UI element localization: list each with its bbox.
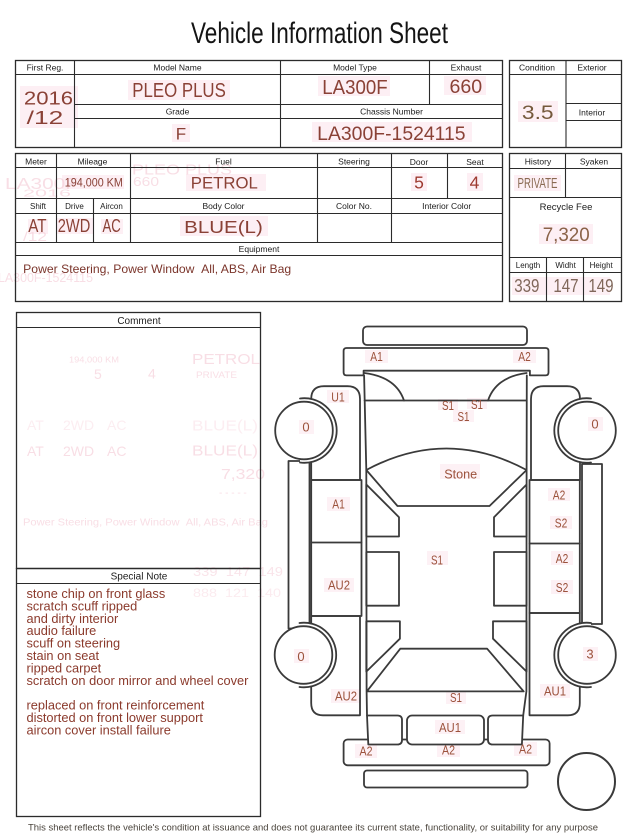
svg-text:Shift: Shift: [30, 202, 47, 211]
svg-text:AT: AT: [28, 216, 46, 236]
svg-text:3.5: 3.5: [522, 102, 554, 124]
svg-text:S1: S1: [431, 553, 443, 568]
svg-text:Interior Color: Interior Color: [422, 201, 471, 211]
svg-text:Aircon: Aircon: [100, 202, 123, 211]
svg-text:A2: A2: [556, 551, 569, 566]
svg-text:aircon cover install failure: aircon cover install failure: [27, 722, 171, 737]
svg-text:A2: A2: [360, 744, 373, 759]
svg-text:- - - - -: - - - - -: [219, 488, 247, 499]
svg-text:AU2: AU2: [328, 578, 350, 593]
svg-text:U1: U1: [331, 390, 345, 405]
svg-text:A1: A1: [370, 349, 383, 364]
svg-text:AT: AT: [27, 443, 44, 459]
svg-text:Special Note: Special Note: [111, 572, 168, 583]
svg-text:3: 3: [586, 647, 593, 662]
svg-text:194,000 KM: 194,000 KM: [69, 355, 119, 365]
svg-text:S2: S2: [556, 580, 569, 595]
svg-text:Mileage: Mileage: [78, 157, 108, 167]
svg-text:Length: Length: [516, 261, 540, 270]
svg-text:2016: 2016: [23, 189, 72, 200]
svg-text:0: 0: [297, 649, 304, 664]
svg-text:LA300F: LA300F: [322, 76, 387, 99]
svg-text:A2: A2: [442, 743, 455, 758]
svg-text:Drive: Drive: [65, 202, 84, 211]
svg-text:AC: AC: [107, 443, 126, 459]
svg-text:Model Type: Model Type: [333, 63, 377, 73]
svg-text:Stone: Stone: [444, 467, 477, 482]
svg-text:BLUE(L): BLUE(L): [192, 443, 258, 460]
svg-text:Exhaust: Exhaust: [451, 63, 482, 73]
svg-text:Comment: Comment: [117, 316, 161, 327]
svg-text:A2: A2: [519, 742, 532, 757]
svg-text:Model Name: Model Name: [153, 63, 201, 73]
svg-text:Power Steering, Power Window: Power Steering, Power Window All, ABS, A…: [23, 262, 291, 276]
svg-text:S1: S1: [471, 397, 483, 412]
svg-text:Fuel: Fuel: [215, 157, 232, 167]
svg-text:7,320: 7,320: [221, 466, 265, 483]
svg-text:AU2: AU2: [335, 689, 357, 704]
svg-text:/12: /12: [27, 107, 64, 128]
svg-text:Equipment: Equipment: [239, 244, 280, 254]
svg-text:2016: 2016: [24, 88, 73, 109]
svg-text:Meter: Meter: [25, 157, 47, 167]
svg-text:S1: S1: [458, 409, 470, 424]
svg-text:Color No.: Color No.: [336, 201, 372, 211]
svg-text:AT: AT: [27, 417, 44, 433]
svg-text:PLEO PLUS: PLEO PLUS: [132, 80, 226, 102]
svg-text:2WD: 2WD: [63, 443, 94, 459]
svg-text:0: 0: [591, 417, 598, 432]
svg-text:Chassis Number: Chassis Number: [360, 107, 423, 117]
svg-text:4: 4: [470, 173, 480, 193]
svg-text:S1: S1: [450, 690, 462, 705]
svg-text:5: 5: [94, 366, 102, 382]
svg-text:scratch on door mirror and whe: scratch on door mirror and wheel cover: [27, 673, 250, 688]
svg-text:PETROL: PETROL: [192, 351, 260, 368]
svg-text:888 121 140: 888 121 140: [193, 586, 281, 600]
svg-text:149: 149: [588, 276, 613, 296]
svg-text:0: 0: [302, 420, 309, 435]
svg-text:5: 5: [414, 173, 424, 193]
svg-text:S1: S1: [442, 398, 454, 413]
svg-text:Vehicle Information Sheet: Vehicle Information Sheet: [191, 17, 448, 50]
svg-text:Steering: Steering: [338, 157, 370, 167]
svg-text:Widht: Widht: [555, 261, 576, 270]
svg-text:339 147 149: 339 147 149: [193, 564, 283, 579]
svg-text:BLUE(L): BLUE(L): [192, 418, 258, 435]
svg-text:AC: AC: [102, 216, 120, 236]
svg-text:S2: S2: [555, 516, 568, 531]
svg-text:A1: A1: [332, 497, 345, 512]
svg-text:Recycle Fee: Recycle Fee: [540, 202, 593, 213]
svg-text:Exterior: Exterior: [577, 63, 606, 73]
svg-text:4: 4: [148, 366, 156, 382]
svg-text:339: 339: [514, 276, 539, 296]
svg-text:PRIVATE: PRIVATE: [518, 176, 558, 192]
svg-text:Grade: Grade: [166, 107, 190, 117]
svg-text:AC: AC: [107, 417, 126, 433]
svg-text:AU1: AU1: [439, 720, 461, 735]
svg-text:660: 660: [450, 76, 483, 98]
svg-text:AU1: AU1: [544, 684, 566, 699]
svg-text:Body Color: Body Color: [202, 201, 244, 211]
svg-text:Power Steering, Power Window: Power Steering, Power Window All, ABS, A…: [23, 517, 268, 529]
svg-text:2WD: 2WD: [58, 216, 91, 236]
svg-text:PETROL: PETROL: [191, 175, 258, 193]
svg-text:A2: A2: [553, 488, 566, 503]
svg-text:147: 147: [553, 276, 578, 296]
svg-text:PRIVATE: PRIVATE: [196, 370, 237, 380]
svg-text:7,320: 7,320: [543, 224, 590, 246]
svg-text:LA300F-1524115: LA300F-1524115: [317, 124, 465, 145]
svg-text:Syaken: Syaken: [580, 157, 609, 167]
svg-text:Interior: Interior: [579, 108, 606, 118]
svg-text:660: 660: [133, 174, 159, 189]
svg-text:This sheet reflects the vehicl: This sheet reflects the vehicle's condit…: [28, 822, 598, 833]
svg-text:History: History: [525, 157, 552, 167]
svg-text:A2: A2: [518, 349, 531, 364]
svg-text:194,000 KM: 194,000 KM: [65, 178, 123, 190]
svg-text:F: F: [176, 125, 186, 144]
svg-text:Seat: Seat: [466, 157, 484, 167]
svg-text:Door: Door: [410, 157, 429, 167]
svg-text:Condition: Condition: [519, 63, 555, 73]
svg-text:2WD: 2WD: [63, 417, 94, 433]
svg-text:Height: Height: [590, 261, 614, 270]
svg-text:BLUE(L): BLUE(L): [184, 217, 263, 237]
svg-text:First Reg.: First Reg.: [27, 63, 64, 73]
